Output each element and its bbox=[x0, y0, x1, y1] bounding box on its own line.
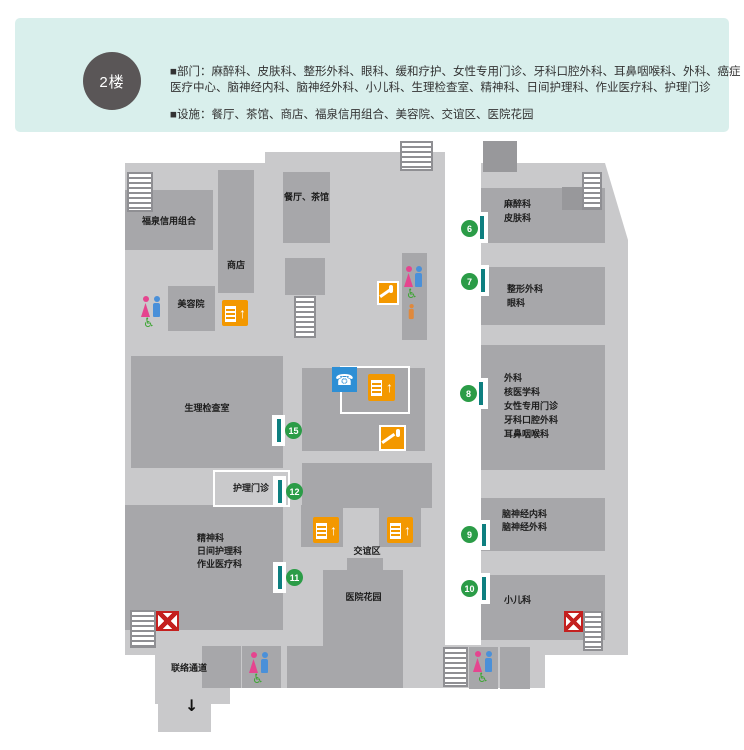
label-surgery: 外科 核医学科 女性专用门诊 牙科口腔外科 耳鼻咽喉科 bbox=[504, 371, 558, 441]
female-restroom-icon bbox=[404, 266, 413, 287]
female-restroom-icon bbox=[141, 296, 150, 317]
elevator-up-arrow-icon: ↑ bbox=[404, 520, 411, 540]
label-anesthesia: 麻醉科 皮肤科 bbox=[504, 197, 531, 225]
baby-care-icon bbox=[408, 304, 414, 319]
exit-x-icon bbox=[564, 611, 583, 632]
window-11-badge: 11 bbox=[286, 569, 303, 586]
label-physiology-exam: 生理检查室 bbox=[141, 402, 273, 414]
elevator-doors-icon bbox=[371, 380, 382, 396]
label-psychiatry: 精神科 日间护理科 作业医疗科 bbox=[197, 532, 242, 571]
wheelchair-icon: ♿ bbox=[406, 288, 418, 302]
window-bar bbox=[477, 265, 489, 296]
exit-x-icon bbox=[156, 611, 179, 631]
room-hospital-garden bbox=[323, 570, 403, 688]
label-fukusen-credit-union: 福泉信用组合 bbox=[127, 215, 211, 227]
elevator-up-arrow-icon: ↑ bbox=[386, 377, 393, 397]
window-8-badge: 8 bbox=[460, 385, 477, 402]
label-connecting-passage: 联络通道 bbox=[160, 662, 218, 674]
stairs-icon bbox=[130, 610, 156, 648]
elevator-up-arrow-icon: ↑ bbox=[330, 520, 337, 540]
room-center-block bbox=[302, 463, 432, 508]
male-restroom-icon bbox=[414, 266, 423, 287]
stairs-icon bbox=[583, 611, 603, 651]
facilities-line: ■设施：餐厅、茶馆、商店、福泉信用组合、美容院、交谊区、医院花园 bbox=[170, 107, 742, 123]
departments-line: ■部门：麻醉科、皮肤科、整形外科、眼科、缓和疗护、女性专用门诊、牙科口腔外科、耳… bbox=[170, 64, 742, 96]
label-plastic-surgery: 整形外科 眼科 bbox=[507, 282, 543, 310]
stairs-icon bbox=[294, 296, 316, 338]
label-hospital-garden: 医院花园 bbox=[341, 591, 386, 603]
female-restroom-icon bbox=[249, 652, 258, 673]
stairs-icon bbox=[400, 141, 433, 171]
label-pediatrics: 小儿科 bbox=[504, 594, 531, 606]
stairs-icon bbox=[127, 172, 153, 212]
elevator-doors-icon bbox=[225, 306, 236, 322]
elevator-icon: ↑ bbox=[368, 374, 395, 401]
wheelchair-icon: ♿ bbox=[477, 672, 489, 686]
phone-icon: ☎ bbox=[332, 367, 357, 392]
male-restroom-icon bbox=[260, 652, 269, 673]
elevator-icon: ↑ bbox=[222, 300, 248, 326]
window-7-badge: 7 bbox=[461, 273, 478, 290]
elevator-doors-icon bbox=[390, 523, 401, 539]
exit-down-arrow-icon: ↓ bbox=[185, 696, 198, 715]
escalator-icon bbox=[377, 281, 399, 305]
elevator-up-arrow-icon: ↑ bbox=[239, 303, 246, 323]
window-bar bbox=[477, 573, 490, 604]
room-restaurant-teahouse bbox=[283, 172, 330, 243]
stairs-icon bbox=[582, 172, 602, 210]
room-block-a bbox=[285, 258, 325, 295]
room-topright-block bbox=[562, 187, 582, 210]
elevator-icon: ↑ bbox=[387, 517, 413, 543]
room-bottom-block-3 bbox=[500, 647, 530, 689]
room-shop bbox=[218, 170, 254, 293]
elevator-doors-icon bbox=[316, 523, 327, 539]
male-restroom-icon bbox=[484, 651, 493, 672]
wheelchair-icon: ♿ bbox=[143, 317, 155, 331]
label-shop: 商店 bbox=[220, 259, 252, 271]
floor-badge: 2楼 bbox=[83, 52, 141, 110]
window-9-badge: 9 bbox=[461, 526, 478, 543]
escalator-icon bbox=[379, 425, 406, 451]
male-restroom-icon bbox=[152, 296, 161, 317]
female-restroom-icon bbox=[473, 651, 482, 672]
floor-guide-page: ■部门：麻醉科、皮肤科、整形外科、眼科、缓和疗护、女性专用门诊、牙科口腔外科、耳… bbox=[0, 0, 744, 750]
label-neurology: 脑神经内科 脑神经外科 bbox=[502, 508, 547, 534]
window-15-badge: 15 bbox=[285, 422, 302, 439]
room-bottom-block-2 bbox=[287, 646, 324, 688]
room-top-tower bbox=[483, 141, 517, 172]
window-10-badge: 10 bbox=[461, 580, 478, 597]
window-6-badge: 6 bbox=[461, 220, 478, 237]
window-bar bbox=[272, 415, 285, 446]
elevator-icon: ↑ bbox=[313, 517, 339, 543]
label-nursing-clinic: 护理门诊 bbox=[214, 482, 288, 494]
stairs-icon bbox=[443, 647, 468, 687]
label-beauty-salon: 美容院 bbox=[171, 298, 211, 310]
window-12-badge: 12 bbox=[286, 483, 303, 500]
label-social-area: 交谊区 bbox=[345, 545, 389, 557]
wheelchair-icon: ♿ bbox=[252, 673, 264, 687]
label-restaurant-teahouse: 餐厅、茶馆 bbox=[283, 191, 330, 203]
floor-description: ■部门：麻醉科、皮肤科、整形外科、眼科、缓和疗护、女性专用门诊、牙科口腔外科、耳… bbox=[170, 64, 742, 134]
window-bar bbox=[477, 520, 490, 550]
window-bar bbox=[273, 562, 286, 593]
